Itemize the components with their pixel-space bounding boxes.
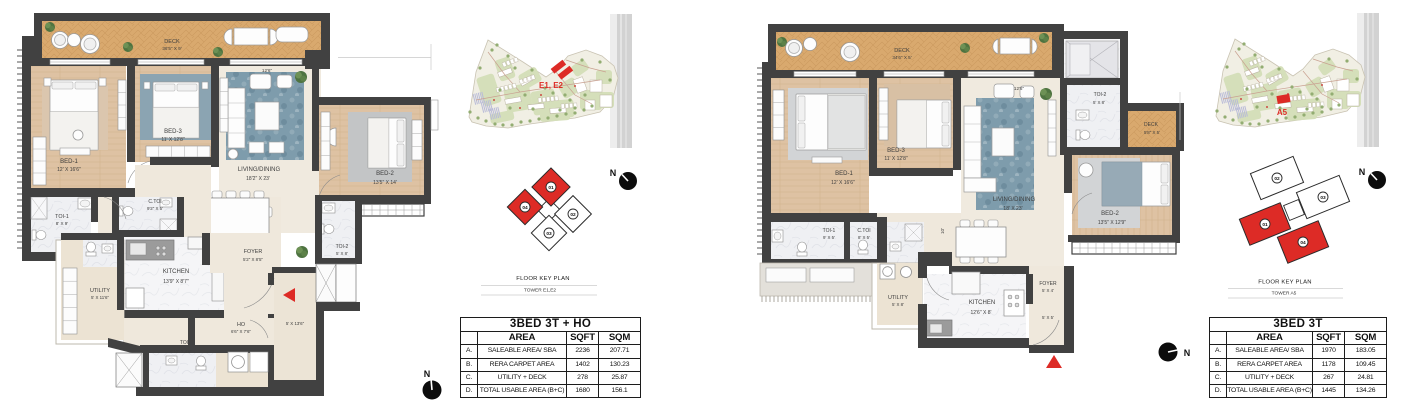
svg-text:12' X 16'6": 12' X 16'6" <box>57 167 81 173</box>
svg-text:12'6" X 8': 12'6" X 8' <box>971 310 992 316</box>
svg-text:BED-2: BED-2 <box>1101 211 1119 217</box>
svg-text:N: N <box>1359 167 1366 177</box>
svg-text:18' X 23': 18' X 23' <box>1003 206 1022 212</box>
svg-text:01: 01 <box>1262 222 1268 228</box>
svg-text:5' X 4': 5' X 4' <box>1042 288 1054 293</box>
svg-text:TOI-1: TOI-1 <box>55 214 69 220</box>
svg-text:11' X 12'8": 11' X 12'8" <box>161 137 185 143</box>
svg-text:BED-2: BED-2 <box>376 171 394 177</box>
svg-text:5' X 13'6": 5' X 13'6" <box>286 321 305 326</box>
svg-text:BED-1: BED-1 <box>835 171 853 177</box>
svg-text:6'10" X 4'6": 6'10" X 4'6" <box>170 349 192 354</box>
svg-text:TOWER E1,E2: TOWER E1,E2 <box>524 288 556 294</box>
svg-text:11' X 12'8": 11' X 12'8" <box>884 156 908 162</box>
svg-text:01: 01 <box>548 185 554 191</box>
svg-text:TOWER A5: TOWER A5 <box>1272 291 1297 297</box>
svg-text:FLOOR KEY PLAN: FLOOR KEY PLAN <box>516 276 569 282</box>
svg-text:5'2" X 8'5": 5'2" X 8'5" <box>243 257 263 262</box>
svg-text:34'6" X 5': 34'6" X 5' <box>892 55 911 60</box>
svg-text:03: 03 <box>1320 195 1326 201</box>
svg-text:UTILITY: UTILITY <box>888 295 908 301</box>
svg-text:8' X 9': 8' X 9' <box>56 221 69 226</box>
svg-text:12'6": 12'6" <box>262 68 273 73</box>
svg-text:TOI: TOI <box>180 340 188 346</box>
svg-text:DECK: DECK <box>164 39 180 45</box>
svg-text:13'9" X 8'7": 13'9" X 8'7" <box>163 279 189 285</box>
svg-text:BED-1: BED-1 <box>60 159 78 165</box>
svg-text:KITCHEN: KITCHEN <box>969 300 995 306</box>
svg-text:5' X 5': 5' X 5' <box>1042 315 1054 320</box>
svg-text:FOYER: FOYER <box>1039 281 1057 287</box>
svg-text:TOI-2: TOI-2 <box>336 244 349 250</box>
svg-text:04: 04 <box>522 205 528 211</box>
svg-text:TOI-2: TOI-2 <box>1094 92 1107 98</box>
svg-text:DECK: DECK <box>1144 122 1159 128</box>
svg-text:C.TOI: C.TOI <box>857 228 870 234</box>
svg-text:5' X 8': 5' X 8' <box>336 251 348 256</box>
svg-text:5' X 8': 5' X 8' <box>1093 100 1105 105</box>
svg-text:HO: HO <box>237 322 245 328</box>
svg-text:12'6": 12'6" <box>1014 86 1025 91</box>
svg-text:18'2" X 23': 18'2" X 23' <box>246 176 270 182</box>
svg-text:DECK: DECK <box>894 48 910 54</box>
svg-text:N: N <box>1184 348 1191 358</box>
svg-text:6'6" X 7'6": 6'6" X 7'6" <box>231 329 251 334</box>
svg-text:UTILITY: UTILITY <box>90 288 110 294</box>
svg-text:5' X 11'6": 5' X 11'6" <box>91 295 109 300</box>
svg-text:E1, E2: E1, E2 <box>539 81 564 90</box>
svg-text:BED-3: BED-3 <box>887 148 905 154</box>
svg-text:02: 02 <box>1274 176 1280 182</box>
svg-text:36'5" X 9': 36'5" X 9' <box>162 46 181 51</box>
svg-text:BED-3: BED-3 <box>164 129 182 135</box>
svg-text:FLOOR KEY PLAN: FLOOR KEY PLAN <box>1258 280 1311 286</box>
svg-text:5' X 8': 5' X 8' <box>892 302 904 307</box>
svg-text:A5: A5 <box>1277 108 1288 117</box>
svg-text:02: 02 <box>570 212 576 218</box>
svg-text:9'2" X 5': 9'2" X 5' <box>147 206 163 211</box>
svg-text:12' X 16'6": 12' X 16'6" <box>831 180 855 186</box>
svg-text:03: 03 <box>546 231 552 237</box>
svg-text:5'8" X 5': 5'8" X 5' <box>1144 130 1160 135</box>
svg-text:N: N <box>610 168 617 178</box>
svg-text:9' X 5': 9' X 5' <box>823 235 835 240</box>
svg-text:TOI-1: TOI-1 <box>823 228 836 234</box>
svg-text:13'5" X 12'9": 13'5" X 12'9" <box>1098 220 1126 226</box>
svg-text:N: N <box>424 369 431 379</box>
svg-text:13'5" X 14': 13'5" X 14' <box>373 180 397 186</box>
svg-text:FOYER: FOYER <box>244 249 263 255</box>
svg-text:KITCHEN: KITCHEN <box>163 269 189 275</box>
svg-text:10': 10' <box>940 228 945 234</box>
svg-text:C.TOI: C.TOI <box>148 199 161 205</box>
svg-text:LIVING/DINING: LIVING/DINING <box>993 197 1036 203</box>
svg-text:LIVING/DINING: LIVING/DINING <box>238 167 281 173</box>
svg-text:04: 04 <box>1300 240 1306 246</box>
svg-text:8' X 5': 8' X 5' <box>858 235 870 240</box>
